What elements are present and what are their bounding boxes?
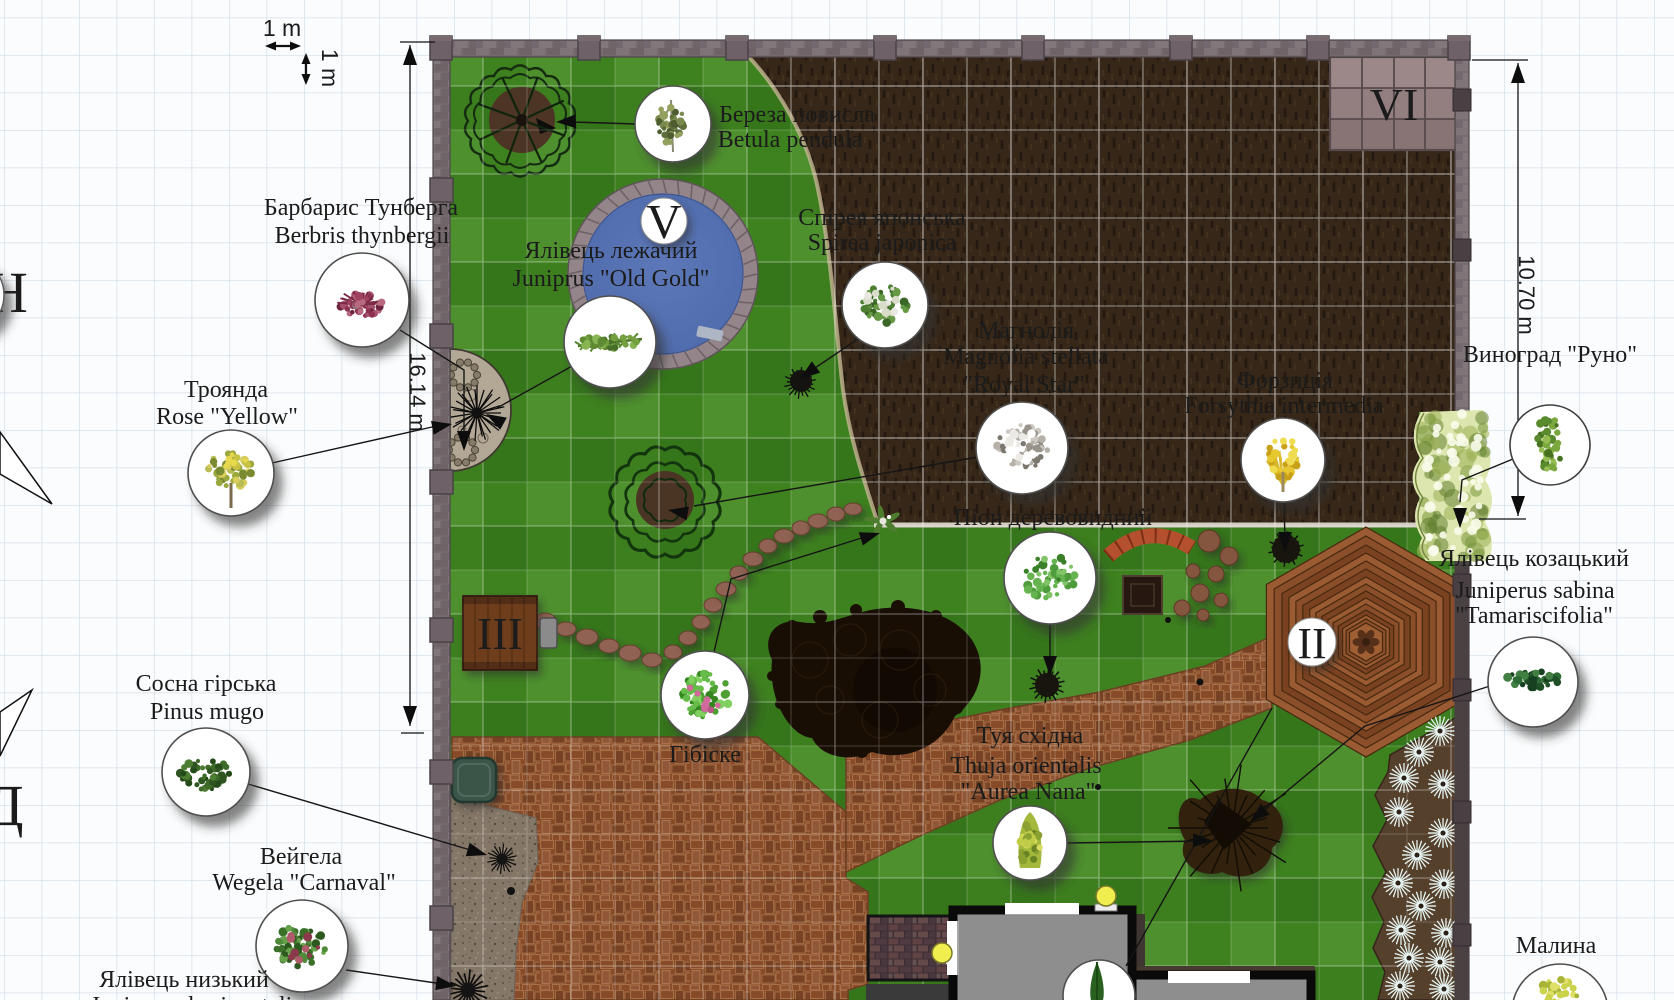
svg-text:Гібіске: Гібіске — [669, 742, 741, 768]
svg-text:Спірея японська: Спірея японська — [798, 205, 966, 231]
svg-text:Вейгела: Вейгела — [260, 844, 343, 870]
svg-text:Spirea japonica: Spirea japonica — [808, 230, 957, 256]
svg-text:1 m: 1 m — [317, 49, 343, 87]
svg-text:Forsythia intermedia: Forsythia intermedia — [1184, 393, 1384, 419]
svg-text:"Royal Star": "Royal Star" — [963, 372, 1085, 398]
svg-text:16.14 m: 16.14 m — [405, 352, 430, 432]
svg-text:Berbris thynbergii: Berbris thynbergii — [275, 223, 450, 249]
svg-text:1 m: 1 m — [263, 15, 301, 41]
svg-text:Форзиція: Форзиція — [1237, 368, 1333, 394]
svg-text:"Aurea Nana": "Aurea Nana" — [961, 779, 1096, 805]
svg-text:Juniperus sabina: Juniperus sabina — [1455, 578, 1615, 604]
svg-text:Береза повисла: Береза повисла — [719, 102, 875, 128]
svg-text:Магнолія: Магнолія — [978, 318, 1074, 344]
svg-text:Magnolia stellata: Magnolia stellata — [943, 344, 1109, 370]
svg-text:Wegela "Carnaval": Wegela "Carnaval" — [212, 870, 396, 896]
svg-text:Малина: Малина — [1516, 933, 1597, 959]
svg-text:Д: Д — [0, 773, 24, 838]
svg-text:Ялівець лежачий: Ялівець лежачий — [525, 238, 698, 264]
svg-text:Піон деревовидний: Піон деревовидний — [954, 505, 1153, 531]
svg-text:Thuja orientalis: Thuja orientalis — [950, 753, 1101, 779]
svg-text:Виноград "Руно": Виноград "Руно" — [1463, 342, 1637, 368]
svg-text:10.70 m: 10.70 m — [1514, 255, 1539, 335]
svg-text:Ялівець козацький: Ялівець козацький — [1439, 546, 1629, 572]
svg-text:III: III — [477, 608, 523, 659]
svg-text:Rose "Yellow": Rose "Yellow" — [156, 404, 298, 430]
svg-text:"Tamariscifolia": "Tamariscifolia" — [1455, 603, 1613, 629]
svg-text:Троянда: Троянда — [184, 377, 268, 403]
svg-text:Ялівець низький: Ялівець низький — [99, 967, 269, 993]
svg-text:Juniprus "Old Gold": Juniprus "Old Gold" — [513, 266, 710, 292]
svg-text:Pinus mugo: Pinus mugo — [150, 699, 264, 725]
svg-text:Betula pendula: Betula pendula — [718, 127, 863, 153]
svg-text:Туя східна: Туя східна — [977, 723, 1084, 749]
svg-text:II: II — [1297, 619, 1326, 668]
svg-text:Juniperus horizontalis: Juniperus horizontalis — [90, 993, 301, 1000]
svg-text:VI: VI — [1370, 79, 1419, 130]
svg-text:Сосна гірська: Сосна гірська — [136, 671, 277, 697]
svg-text:Барбарис Тунберга: Барбарис Тунберга — [264, 195, 458, 221]
